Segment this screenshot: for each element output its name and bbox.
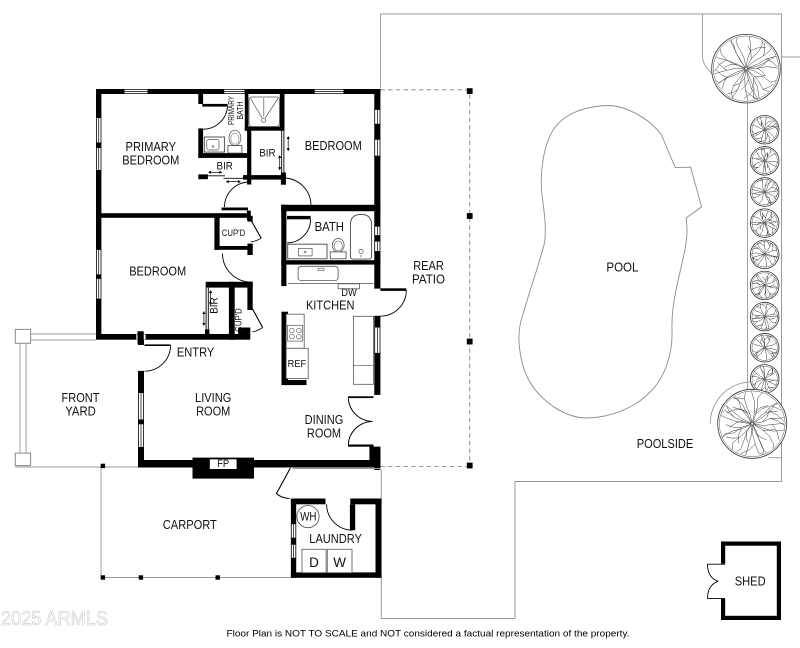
svg-text:REF: REF — [288, 358, 307, 370]
svg-text:2025 ARMLS: 2025 ARMLS — [1, 607, 108, 630]
svg-text:SHED: SHED — [735, 573, 766, 588]
svg-text:BIR: BIR — [209, 297, 221, 313]
svg-text:BATH: BATH — [236, 101, 245, 119]
svg-text:BEDROOM: BEDROOM — [305, 138, 362, 153]
svg-text:BATH: BATH — [315, 219, 344, 234]
svg-text:D: D — [309, 555, 319, 570]
svg-text:CUP'D: CUP'D — [234, 308, 244, 332]
svg-text:CUP'D: CUP'D — [222, 228, 246, 238]
svg-text:W: W — [333, 555, 346, 570]
svg-text:BEDROOM: BEDROOM — [129, 264, 186, 279]
svg-text:LAUNDRY: LAUNDRY — [309, 531, 362, 546]
svg-text:ROOM: ROOM — [196, 404, 230, 419]
svg-text:PRIMARY: PRIMARY — [227, 96, 236, 125]
svg-text:POOLSIDE: POOLSIDE — [637, 436, 694, 451]
svg-text:ENTRY: ENTRY — [177, 345, 215, 360]
svg-text:YARD: YARD — [65, 404, 96, 419]
svg-text:Floor Plan is NOT TO SCALE and: Floor Plan is NOT TO SCALE and NOT consi… — [227, 629, 630, 639]
svg-text:CARPORT: CARPORT — [163, 517, 217, 532]
svg-text:ROOM: ROOM — [307, 425, 341, 440]
svg-text:BIR: BIR — [259, 148, 275, 160]
svg-text:POOL: POOL — [606, 259, 638, 274]
svg-text:PATIO: PATIO — [412, 271, 445, 286]
svg-text:BEDROOM: BEDROOM — [122, 153, 179, 168]
svg-text:FP: FP — [217, 458, 229, 470]
svg-text:WH: WH — [300, 512, 316, 524]
svg-text:KITCHEN: KITCHEN — [306, 297, 355, 312]
svg-text:BIR: BIR — [217, 160, 233, 172]
